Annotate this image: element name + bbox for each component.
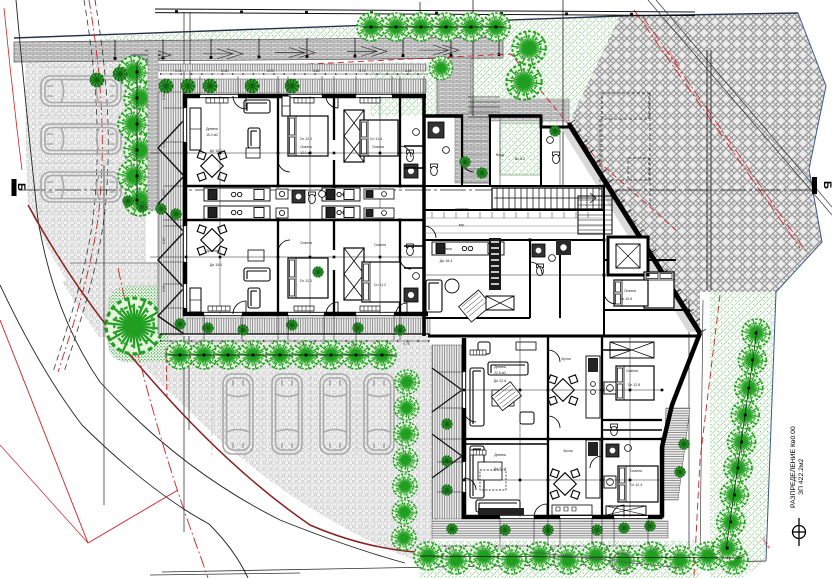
- svg-text:Дн 15.0: Дн 15.0: [210, 263, 222, 267]
- svg-text:Сп 11.4: Сп 11.4: [370, 137, 382, 141]
- svg-text:2.23: 2.23: [497, 547, 504, 551]
- svg-text:Вх 8.2: Вх 8.2: [515, 157, 525, 161]
- svg-text:4.57: 4.57: [162, 189, 166, 196]
- svg-text:Б: Б: [821, 181, 832, 189]
- svg-text:Кухня: Кухня: [561, 357, 570, 361]
- svg-text:22.6 м2: 22.6 м2: [494, 371, 506, 375]
- svg-text:Дн 21.9: Дн 21.9: [494, 467, 506, 471]
- svg-text:ЗП 422.2м2: ЗП 422.2м2: [798, 458, 805, 495]
- svg-text:2.87: 2.87: [162, 237, 166, 244]
- svg-text:Сп 12.1: Сп 12.1: [300, 279, 313, 283]
- svg-text:3.47: 3.47: [162, 141, 166, 148]
- svg-text:Спалня: Спалня: [630, 469, 642, 473]
- svg-text:Сп 12.8: Сп 12.8: [628, 383, 641, 387]
- svg-text:2.38: 2.38: [351, 342, 358, 346]
- svg-text:2.18: 2.18: [195, 342, 202, 346]
- svg-text:2.92: 2.92: [601, 547, 608, 551]
- svg-text:3.44: 3.44: [653, 547, 660, 551]
- svg-text:РАЗПРЕДЕЛЕНИЕ Кв0.00: РАЗПРЕДЕЛЕНИЕ Кв0.00: [790, 426, 797, 508]
- svg-text:2.31: 2.31: [162, 93, 166, 100]
- svg-text:Спалня: Спалня: [374, 243, 386, 247]
- svg-text:Дневна: Дневна: [494, 365, 506, 369]
- svg-text:Спалня: Спалня: [300, 241, 312, 245]
- svg-text:2.61: 2.61: [247, 342, 254, 346]
- svg-text:12.1 м2: 12.1 м2: [300, 151, 312, 155]
- svg-text:Дн 22.6: Дн 22.6: [494, 379, 506, 383]
- svg-text:Кухня: Кухня: [563, 449, 572, 453]
- svg-text:Спалня: Спалня: [626, 369, 638, 373]
- svg-text:4.78: 4.78: [403, 342, 410, 346]
- svg-text:15.2 м2: 15.2 м2: [206, 133, 218, 137]
- svg-text:3.48: 3.48: [221, 69, 228, 73]
- svg-text:Вход: Вход: [496, 153, 504, 157]
- svg-text:коридор: коридор: [456, 207, 469, 211]
- svg-text:Спалня: Спалня: [372, 145, 384, 149]
- svg-text:Сп 12.1: Сп 12.1: [300, 137, 313, 141]
- svg-text:Спалня: Спалня: [624, 289, 636, 293]
- svg-text:3.71: 3.71: [359, 69, 366, 73]
- svg-text:Спалня: Спалня: [300, 145, 312, 149]
- svg-text:кор.: кор.: [459, 223, 466, 227]
- svg-text:3.23: 3.23: [267, 69, 274, 73]
- svg-text:Сп 10.6: Сп 10.6: [620, 297, 633, 301]
- svg-text:4.47: 4.47: [299, 342, 306, 346]
- svg-text:Сп 12.4: Сп 12.4: [630, 483, 643, 487]
- svg-text:3.29: 3.29: [405, 69, 412, 73]
- svg-text:Дневна: Дневна: [206, 127, 218, 131]
- svg-text:Дневна: Дневна: [440, 247, 452, 251]
- svg-text:Дневна: Дневна: [206, 249, 218, 253]
- svg-text:Дн 18.4: Дн 18.4: [440, 259, 452, 263]
- svg-text:3.95: 3.95: [162, 285, 166, 292]
- svg-text:Дневна: Дневна: [494, 453, 506, 457]
- svg-text:3.37: 3.37: [549, 547, 556, 551]
- svg-text:3.40: 3.40: [175, 69, 182, 73]
- svg-text:3.45: 3.45: [445, 547, 452, 551]
- svg-text:3.60: 3.60: [313, 69, 320, 73]
- svg-text:Б: Б: [15, 183, 27, 191]
